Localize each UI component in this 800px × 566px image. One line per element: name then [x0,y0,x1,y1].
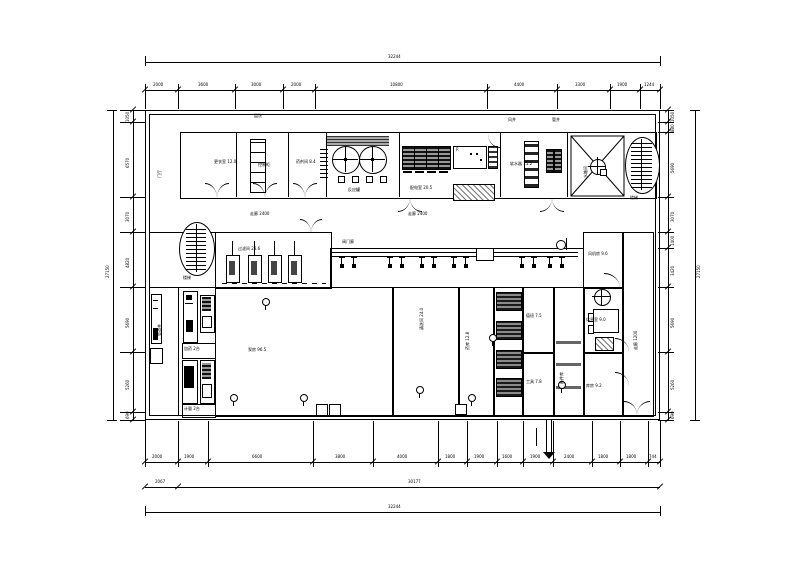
drain-arrow [543,452,555,459]
dimension-label: 3600 [198,83,208,87]
platform-hatch [327,136,389,146]
dimension-label: 1050 [671,112,675,122]
pump-icon [489,334,497,342]
floor-plan-canvas: 32244 2000 3600 3000 2000 10800 4400 330… [0,0,800,566]
door-threshold [329,404,341,416]
filter-unit-icon [226,255,240,283]
panel-icon [554,149,562,173]
room-label: 工具 7.8 [526,380,542,384]
wall [236,132,237,197]
label-box [182,343,216,359]
panel-icon [546,149,554,173]
equipment-pad [338,176,345,183]
shelf-icon [556,363,581,366]
dimension-label: 2000 [153,83,163,87]
dimension-label: 3070 [671,212,675,222]
desk-dot [476,153,478,155]
valve-icon [548,264,552,268]
dimension-label: 4820 [126,258,130,268]
ladder-icon [320,146,328,178]
dimension-extension [107,110,117,111]
room-label: 药剂间 8.4 [296,160,316,164]
unit-detail [184,366,194,388]
room-label: 软水器 15.2 [510,162,532,166]
pipe-cap [331,250,332,259]
tank-icon [496,378,522,397]
riser-icon [150,348,163,364]
dimension-label: 744 [649,455,657,459]
dimension-label: 1800 [445,455,455,459]
drain-pipe [551,420,552,453]
dimension-label: 2400 [564,455,574,459]
drain-pipe [546,420,547,453]
door-threshold [316,404,328,416]
unit-detail [153,300,158,301]
dimension-label: 1900 [474,455,484,459]
room-label: 管道井 [158,324,162,336]
dimension-label: 3000 [251,83,261,87]
dimension-label: 3800 [335,455,345,459]
gauge-icon [556,240,566,250]
room-label: 值班 7.5 [526,314,542,318]
room-label: 风机房 9.6 [588,252,608,256]
filter-unit-icon [248,255,262,283]
meter-box-icon [476,248,494,261]
room-label: 反应罐 [348,188,360,192]
pipe-line [332,252,578,253]
stair-centerline [196,224,197,272]
tank-icon [496,292,522,311]
unit-detail [186,320,193,332]
dimension-extension [145,56,146,66]
dimension-label: 32244 [388,55,401,59]
valve-icon [432,264,436,268]
corridor-outline [622,232,654,417]
dimension-line [145,90,660,91]
chem-store-outline [458,287,495,417]
unit-detail [185,303,193,304]
dimension-label: 6570 [126,158,130,168]
dimension-label: 10800 [390,83,403,87]
dimension-line [145,512,660,513]
drain-cross [597,157,598,175]
equipment-hatch [595,337,614,351]
wall [288,132,289,197]
valve-icon [532,264,536,268]
room-label: 药库 12.8 [466,332,470,350]
dimension-label: 5690 [126,318,130,328]
dimension-extension [690,110,700,111]
control-desk-label: P. [456,148,459,152]
dimension-label: 4400 [514,83,524,87]
valve-icon [352,264,356,268]
door-threshold [455,404,467,415]
dimension-line [145,462,660,463]
dimension-line [145,487,660,488]
room-label: 配电室 20.5 [410,186,432,190]
equipment-pad [352,176,359,183]
shelf-icon [556,341,581,344]
filter-unit-icon [268,255,282,283]
dimension-label: 1600 [502,455,512,459]
dimension-label: 1800 [598,455,608,459]
dimension-label: 1900 [184,455,194,459]
dimension-label: 5690 [671,163,675,173]
dimension-label: 5260 [126,380,130,390]
room-label: 楼梯 [630,196,638,200]
tank-center [371,158,374,161]
dimension-extension [660,56,661,66]
cabinet-base [439,171,448,173]
tank-icon [496,321,522,340]
valve-icon [560,264,564,268]
dimension-label: 3070 [126,212,130,222]
dimension-label: 690 [671,411,675,419]
unit-hatch [202,363,211,379]
dimension-label: 4000 [397,455,407,459]
equipment-pad [380,176,387,183]
room-label: 休息室 9.0 [586,318,606,322]
cabinet-base [403,171,412,173]
wall [330,248,583,249]
filter-unit-icon [288,255,302,283]
wall [399,132,400,197]
unit-detail [202,384,212,398]
dimension-line [133,110,134,420]
room-label: 盥洗 [254,114,262,118]
valve-icon [452,264,456,268]
valve-icon [388,264,392,268]
unit-detail [153,308,158,309]
fan-icon [594,289,611,306]
switchgear-cabinet-icon [438,146,451,170]
room-label: 控制柜 [258,163,270,167]
unit-detail [202,316,212,328]
gauge-stem [566,238,567,250]
room-label: 库房 9.2 [586,384,602,388]
valve-icon [400,264,404,268]
dimension-label: 3420 [671,266,675,276]
wash-room-outline [392,287,460,417]
tank-icon [496,350,522,369]
cable-trench-hatch [453,184,495,201]
dimension-label: 32244 [388,505,401,509]
desk-dot [470,153,472,155]
dimension-extension [107,420,117,421]
room-label: 楼梯 [183,276,191,280]
dimension-label: 2067 [155,480,165,484]
room-label: 风井 [508,118,516,122]
tool-room-outline [522,352,555,417]
dimension-label: 27150 [106,265,110,278]
pump-icon [300,394,308,402]
room-label: 加药 2台 [184,347,200,351]
chair-icon [588,325,594,334]
room-label: 更衣室 12.0 [214,160,236,164]
dimension-label: 690 [126,411,130,419]
unit-detail [186,295,192,300]
dimension-tick [657,483,663,489]
pump-icon [416,386,424,394]
dimension-label: 1800 [626,455,636,459]
dimension-label: 1244 [644,83,654,87]
wall [500,132,501,197]
room-label: 清洗间 24.0 [420,308,424,330]
dimension-label: 2000 [152,455,162,459]
cabinet-base [415,171,424,173]
dimension-label: 880 [671,124,675,132]
valve-icon [340,264,344,268]
duty-room-outline [522,287,555,354]
dimension-label: 1900 [530,455,540,459]
valve-icon [464,264,468,268]
room-label: 管井 [552,118,560,122]
dimension-label: 1400 [671,236,675,246]
dimension-extension [690,420,700,421]
room-label: 备件库 [560,372,564,384]
wall [178,287,179,415]
dimension-label: 1050 [126,112,130,122]
drain-tick [536,428,537,446]
dimension-label: 1900 [617,83,627,87]
room-label: 计量 2台 [184,407,200,411]
dimension-label: 2000 [291,83,301,87]
equipment-pad [366,176,373,183]
drain-box [600,169,607,176]
stair-centerline [641,139,642,190]
pump-icon [468,394,476,402]
panel-icon [488,146,498,169]
valve-icon [420,264,424,268]
dimension-extension [660,506,661,516]
wall [567,132,568,197]
dimension-line [113,110,114,420]
pipe-dashed [222,283,326,284]
pump-icon [230,394,238,402]
room-label: 走廊 1200 [634,331,638,350]
dimension-label: 5260 [671,380,675,390]
spare-room-outline [553,287,585,417]
room-label: 泵房 96.5 [248,348,266,352]
desk-dot [480,159,482,161]
fan-cross [601,287,602,306]
dimension-label: 30177 [408,480,421,484]
valve-icon [520,264,524,268]
room-label: 走廊 2400 [408,212,427,216]
cabinet-base [427,171,436,173]
dimension-extension [145,506,146,516]
room-label: 过滤间 28.6 [238,247,260,251]
dimension-line [668,110,669,420]
unit-hatch [202,297,211,311]
room-label: 走廊 2400 [250,212,269,216]
tank-center [344,158,347,161]
dimension-line [145,62,660,63]
pump-icon [262,298,270,306]
dimension-label: 27150 [697,265,701,278]
dimension-label: 5690 [671,318,675,328]
dimension-label: 6600 [252,455,262,459]
room-label: 阀门廊 [342,240,354,244]
room-label: 水箱间 [584,166,588,178]
dimension-label: 3300 [575,83,585,87]
room-label: 门厅 [158,170,162,178]
